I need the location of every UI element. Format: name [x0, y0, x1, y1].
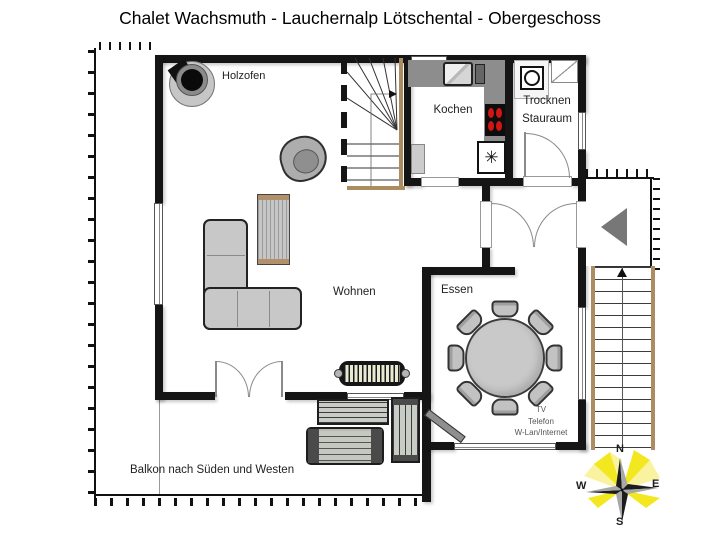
- page-title: Chalet Wachsmuth - Lauchernalp Lötschent…: [0, 8, 720, 29]
- kitchen-stove: [485, 104, 505, 136]
- bench-cap: [393, 455, 418, 461]
- compass-n: N: [616, 443, 624, 455]
- label-stauraum: Stauraum: [516, 113, 578, 125]
- landing-rail-ticks-right: [653, 178, 660, 270]
- washing-machine: [514, 60, 549, 99]
- wall-dining-west: [422, 267, 431, 502]
- stove-burner: [496, 121, 502, 131]
- stauraum-shelf: [551, 60, 578, 83]
- balcony-table: [317, 399, 389, 425]
- wall-south-living-a: [155, 392, 215, 400]
- sideboard-cap: [258, 195, 289, 200]
- armchair: [274, 130, 333, 187]
- hall-west-door-arc: [492, 203, 534, 247]
- sideboard-cap: [258, 259, 289, 264]
- dining-chair: [546, 345, 563, 372]
- south-balcony-rail: [94, 494, 430, 496]
- stauraum-door-arc: [526, 133, 570, 178]
- amenity-item: W-Lan/Internet: [500, 427, 582, 439]
- landing-rail-ticks-top: [586, 169, 654, 177]
- sofa-cushion-line: [207, 255, 245, 256]
- stair-up-arrow: [617, 268, 627, 277]
- west-balcony-rail-ticks: [88, 50, 94, 502]
- direction-arrow: [601, 208, 627, 246]
- label-wohnen: Wohnen: [333, 286, 376, 298]
- sofa-horizontal-arm: [203, 287, 302, 330]
- radiator-knob: [334, 369, 343, 378]
- window-stauraum-east: [578, 112, 586, 150]
- label-balkon: Balkon nach Süden und Westen: [130, 464, 294, 476]
- amenity-item: TV: [500, 404, 582, 416]
- entrance-door-arc: [534, 203, 576, 247]
- wall-west-lower: [155, 305, 163, 400]
- balcony-door-right-arc: [249, 361, 282, 397]
- kitchen-faucet: [475, 64, 485, 84]
- wall-west-upper: [155, 55, 163, 203]
- washing-machine-door: [520, 66, 544, 90]
- wall-east-c: [578, 247, 586, 307]
- north-balcony-rail-ticks: [99, 42, 157, 50]
- balcony-bench: [391, 397, 420, 463]
- compass-e: E: [652, 478, 659, 490]
- stove-burner: [488, 121, 494, 131]
- radiator-fins: [344, 365, 400, 382]
- sofa-cushion-line: [237, 291, 238, 327]
- wall-south-dining-a: [424, 442, 454, 450]
- compass-w: W: [576, 480, 586, 492]
- dining-chair: [492, 301, 519, 318]
- window-dining-east: [578, 307, 586, 400]
- exterior-stairs: [591, 266, 655, 450]
- entry-landing: [586, 179, 652, 266]
- balcony-door-left-arc: [216, 361, 249, 397]
- amenities-list: TV Telefon W-Lan/Internet: [500, 404, 582, 439]
- balcony-lounger: [306, 427, 384, 465]
- wood-stove-icon: [169, 59, 219, 107]
- kitchen-mini-counter: [411, 144, 425, 174]
- wall-east-b: [578, 150, 586, 204]
- wall-hall-west-a: [482, 186, 490, 202]
- wall-kitchen-stauraum: [505, 55, 513, 178]
- window-living-west: [154, 203, 163, 305]
- armchair-seat: [290, 146, 322, 177]
- stove-burner: [488, 108, 494, 118]
- wall-hall-north-b: [458, 178, 523, 186]
- compass-s: S: [616, 516, 623, 528]
- label-essen: Essen: [441, 284, 473, 296]
- interior-stairs: [347, 58, 403, 188]
- stove-burner: [496, 108, 502, 118]
- dining-set: [445, 297, 565, 419]
- lounger-cap: [308, 429, 319, 463]
- amenity-item: Telefon: [500, 416, 582, 428]
- lounger-slats: [319, 431, 371, 461]
- south-balcony-rail-ticks: [94, 498, 430, 506]
- dining-table: [465, 318, 545, 398]
- label-trocknen: Trocknen: [516, 95, 578, 107]
- floor-plan: Chalet Wachsmuth - Lauchernalp Lötschent…: [0, 0, 720, 540]
- kitchen-sink: [443, 62, 473, 86]
- stair-center-line: [622, 266, 623, 450]
- stair-rail-right: [651, 266, 655, 450]
- stair-treads: [595, 266, 651, 450]
- west-balcony-rail: [94, 48, 96, 506]
- sideboard-table: [257, 194, 290, 265]
- wall-hall-south: [424, 267, 515, 275]
- radiator-living: [339, 361, 405, 386]
- freezer-appliance: ✳: [477, 141, 506, 174]
- wall-east-a: [578, 55, 586, 112]
- doorway-kitchen-opening: [421, 177, 459, 187]
- wood-stove-core: [181, 69, 203, 91]
- wall-hall-north-a: [404, 178, 422, 186]
- dining-chair: [448, 345, 465, 372]
- interior-stairs-bottom-rail: [347, 186, 405, 190]
- radiator-knob: [401, 369, 410, 378]
- label-kochen: Kochen: [424, 104, 482, 116]
- lounger-cap: [371, 429, 382, 463]
- window-dining-south: [454, 443, 556, 450]
- bench-cap: [393, 399, 418, 405]
- washing-machine-drum: [524, 70, 540, 86]
- doorway-hall-west: [480, 201, 492, 248]
- label-holzofen: Holzofen: [222, 70, 265, 82]
- compass-rose: N E S W: [575, 443, 671, 535]
- freezer-symbol-icon: ✳: [484, 148, 498, 168]
- balcony-divider-line: [159, 400, 160, 494]
- sofa-cushion-line: [269, 291, 270, 327]
